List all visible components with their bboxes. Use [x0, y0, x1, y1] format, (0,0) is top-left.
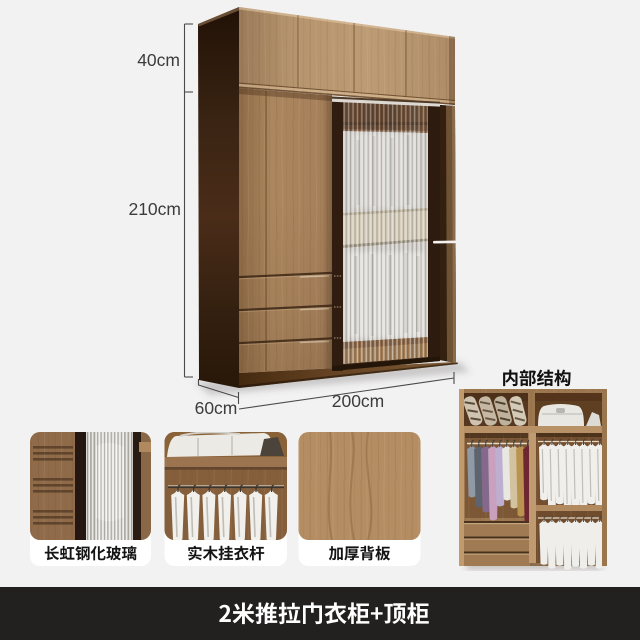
svg-text:200cm: 200cm — [332, 391, 385, 411]
svg-text:60cm: 60cm — [195, 398, 238, 418]
svg-text:40cm: 40cm — [137, 50, 180, 70]
svg-text:210cm: 210cm — [128, 199, 181, 219]
